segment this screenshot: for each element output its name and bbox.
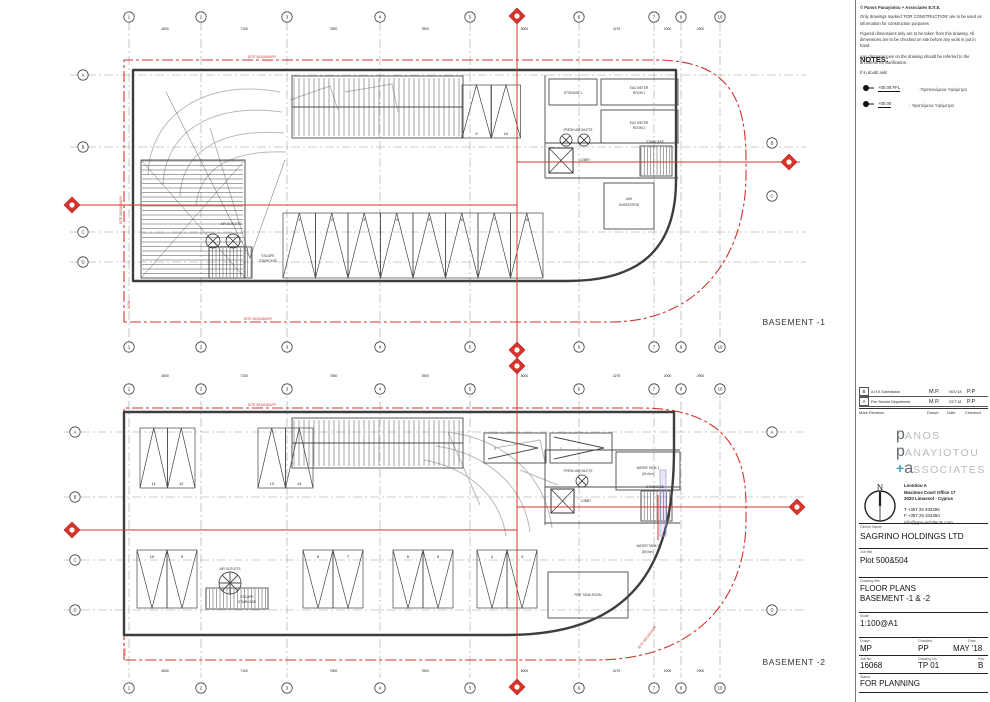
stall-marking [140,428,168,488]
grid-bubble-label: 10 [718,345,723,350]
stall-number: 2 [494,447,496,451]
room-label: (50.0m³) [642,472,654,476]
parking-stall [413,213,446,278]
dimension-text: 2900 [697,374,705,378]
grid-bubble-label: A [771,430,774,435]
floor-plan-drawing: 11223344556677991010ABCDBC45007100780078… [0,0,855,702]
dimension-text: 7100 [240,27,248,31]
room-label: STAIRCASE [259,259,277,263]
level-marker-icon [862,84,874,92]
rev-value: B [978,661,983,670]
note-proposed-levels: +00.00 FFL : Προτεινόμενα Υψόμετρα [862,84,967,92]
parking-stall [140,428,168,488]
room-label: (50.0m³) [642,550,654,554]
dimension-text: 4275 [613,374,621,378]
grid-bubble-label: D [73,608,76,613]
room-label: EAC METER [630,86,649,90]
grid-bubble-label: D [770,608,773,613]
copyright-line: © Panos Panayiotou + Associates Ε.Π.Ε. [860,5,986,11]
level-marker-icon [862,100,874,108]
section-marker-icon [794,504,799,509]
scale-label: Scale [860,614,869,618]
room-label: ROOM 2 [633,126,646,130]
room-label: STAIRCASE [646,485,664,489]
room-label: AIR OUTLETS [221,222,242,226]
stall-marking [381,213,414,278]
dimension-text: 7800 [330,669,338,673]
stall-number: 14 [297,481,302,486]
stall-marking [413,213,446,278]
room-label: AIR OUTLETS [220,567,241,571]
date-value: MAY '18 [953,644,982,653]
dimension-text: 7800 [421,669,429,673]
architect-logo: pANOS pANAYIOTOU +aSSOCIATES [896,427,986,477]
dimension-text: 2900 [697,27,705,31]
offset-dimension: 3150 [127,301,131,309]
room-label: SUBSTATION [619,203,640,207]
dimension-text: 7800 [421,374,429,378]
site-boundary-label: SITE BOUNDARY [248,55,277,59]
room-label: ESCAPE [241,595,254,599]
dimension-text: 7800 [421,27,429,31]
parking-stall [348,213,381,278]
site-boundary-b2 [124,408,746,660]
stall-number: 1 [560,447,562,451]
scale-value: 1:100@A1 [860,619,898,628]
grid-bubble-label: 10 [718,686,723,691]
checked-value: PP [918,644,929,653]
stall-number: 10 [150,554,155,559]
offset-dimension: 3150 [123,648,127,656]
svg-text:N: N [877,483,883,492]
plan-title-basement-2: BASEMENT -2 [762,657,825,667]
site-boundary-label: SITE BOUNDARY [637,624,658,649]
dimension-text: 8000 [521,669,529,673]
room-label: STORAGE 1 [564,91,582,95]
ramp-diagonal [250,160,285,258]
dimension-text: 4275 [613,669,621,673]
stall-number: 12 [179,481,184,486]
title-block: © Panos Panayiotou + Associates Ε.Π.Ε. O… [855,0,990,702]
room-label: LOBBY [581,499,593,503]
revision-row: B A.H.K Submission M.P. NOV'18 P.P [859,387,988,397]
section-markers [64,8,805,695]
drawn-value: MP [860,644,872,653]
dimension-text: 7100 [240,669,248,673]
drawing-sheet: 11223344556677991010ABCDBC45007100780078… [0,0,990,702]
parking-stall [168,428,196,488]
room-label: AHK [626,197,633,201]
room-label: ROOM 1 [633,91,646,95]
grid-bubble-label: B [82,145,85,150]
job-title: Plot 500&504 [860,556,908,565]
symbols-layer [206,134,590,513]
grid-bubble-label: B [771,141,774,146]
drawing-title-2: BASEMENT -1 & -2 [860,594,930,603]
section-marker-band [660,470,666,536]
note-existing-levels: +00.00 : Υφιστάμενα Υψόμετρα [862,100,954,108]
room-label: FRESH AIR INLETS [564,128,593,132]
parking-stall [511,213,544,278]
plan-title-basement-1: BASEMENT -1 [762,317,825,327]
room-label: ESCAPE [262,254,275,258]
section-marker-icon [514,684,519,689]
grid-bubble-label: A [74,430,77,435]
room-label: STAIRCASE [646,140,664,144]
grid-bubble-label: C [770,194,773,199]
staircase-b1 [640,146,672,176]
grid-bubble-label: A [82,73,85,78]
parking-stall [316,213,349,278]
office-address: Leontiou A Maximos Court Office 17 3020 … [904,483,955,527]
parking-stall [381,213,414,278]
job-label: Job title [860,550,872,554]
parking-stall [478,213,511,278]
basement-2-plan: 2 1 [124,408,746,660]
stall-number: 3 [521,554,524,559]
grid-bubble-label: D [81,260,84,265]
section-marker-icon [514,347,519,352]
stall-marking [348,213,381,278]
dimension-text: 8000 [521,27,529,31]
room-label: EAC METER [630,121,649,125]
section-marker-icon [514,13,519,18]
site-boundary-label: SITE BOUNDARY [119,195,123,224]
stall-marking [168,428,196,488]
checked-label: Checked [918,639,932,643]
dimension-text: 8000 [521,374,529,378]
room-label: FIRE TANK ROOM [574,593,601,597]
dimension-text: 2000 [664,669,672,673]
stall-marking [316,213,349,278]
site-boundary-label: SITE BOUNDARY [248,403,277,407]
status-value: FOR PLANNING [860,679,920,688]
dimension-text: 2000 [664,27,672,31]
dimension-text: 7800 [330,374,338,378]
parking-stall [446,213,479,278]
date-label: Date [968,639,976,643]
dimension-text: 2900 [697,669,705,673]
parking-stall [258,428,286,488]
jobno-value: 16068 [860,661,882,670]
drawing-title-1: FLOOR PLANS [860,584,916,593]
grid-bubble-label: 10 [718,15,723,20]
stall-number: 13 [270,481,275,486]
stall-number: 6 [407,554,410,559]
stall-number: 7 [347,554,350,559]
dwgno-value: TP 01 [918,661,939,670]
stall-marking [478,213,511,278]
room-label: LOBBY [580,158,592,162]
stall-number: 5 [437,554,440,559]
parking-stall [283,213,316,278]
dimension-text: 4500 [161,669,169,673]
room-label: STAIRCASE [238,600,256,604]
building-outline-b1 [133,70,676,281]
notes-title: NOTES: [860,55,888,64]
client-name: SAGRINO HOLDINGS LTD [860,531,964,541]
revision-table: B A.H.K Submission M.P. NOV'18 P.P A Fir… [859,387,988,415]
site-boundary-b1 [124,60,746,322]
grid-bubble-label: B [74,495,77,500]
dimension-text: 4500 [161,27,169,31]
room-label: FRESH AIR INLETS [564,469,593,473]
site-boundary-label: SITE BOUNDARY [244,317,273,321]
hatch-layer [142,78,670,608]
stall-marking [446,213,479,278]
revision-row: A Fire Service Department M.P. OCT'18 P.… [859,397,988,407]
dimension-text: 7800 [330,27,338,31]
room-label: WATER TANK 1 [637,466,660,470]
grid-bubble-label: C [73,558,76,563]
stall-number: 10 [504,131,509,136]
stall-number: 9 [181,554,184,559]
section-marker-icon [786,159,791,164]
grid-bubble-label: C [81,230,84,235]
stall-number: 9 [475,131,478,136]
section-marker-icon [69,527,74,532]
basement-1-plan [124,60,746,322]
dimension-text: 2000 [664,374,672,378]
dimension-text: 4500 [161,374,169,378]
copyright-disclaimer: © Panos Panayiotou + Associates Ε.Π.Ε. O… [860,5,986,81]
dimension-text: 7100 [240,374,248,378]
stall-marking [258,428,286,488]
drawing-label: Drawing title [860,579,880,583]
drawn-label: Drawn [860,639,870,643]
section-marker-icon [514,363,519,368]
stall-marking [511,213,544,278]
stall-marking [283,213,316,278]
stall-number: 8 [317,554,320,559]
stall-number: 4 [491,554,494,559]
stall-number: 11 [152,481,157,486]
client-label: Clients Name [860,525,882,529]
room-label: WATER TANK 2 [637,544,660,548]
revision-header: Mark Revision Drawn Date Checked [859,408,988,415]
dimension-text: 4275 [613,27,621,31]
grid-bubble-label: 10 [718,387,723,392]
section-marker-icon [69,202,74,207]
